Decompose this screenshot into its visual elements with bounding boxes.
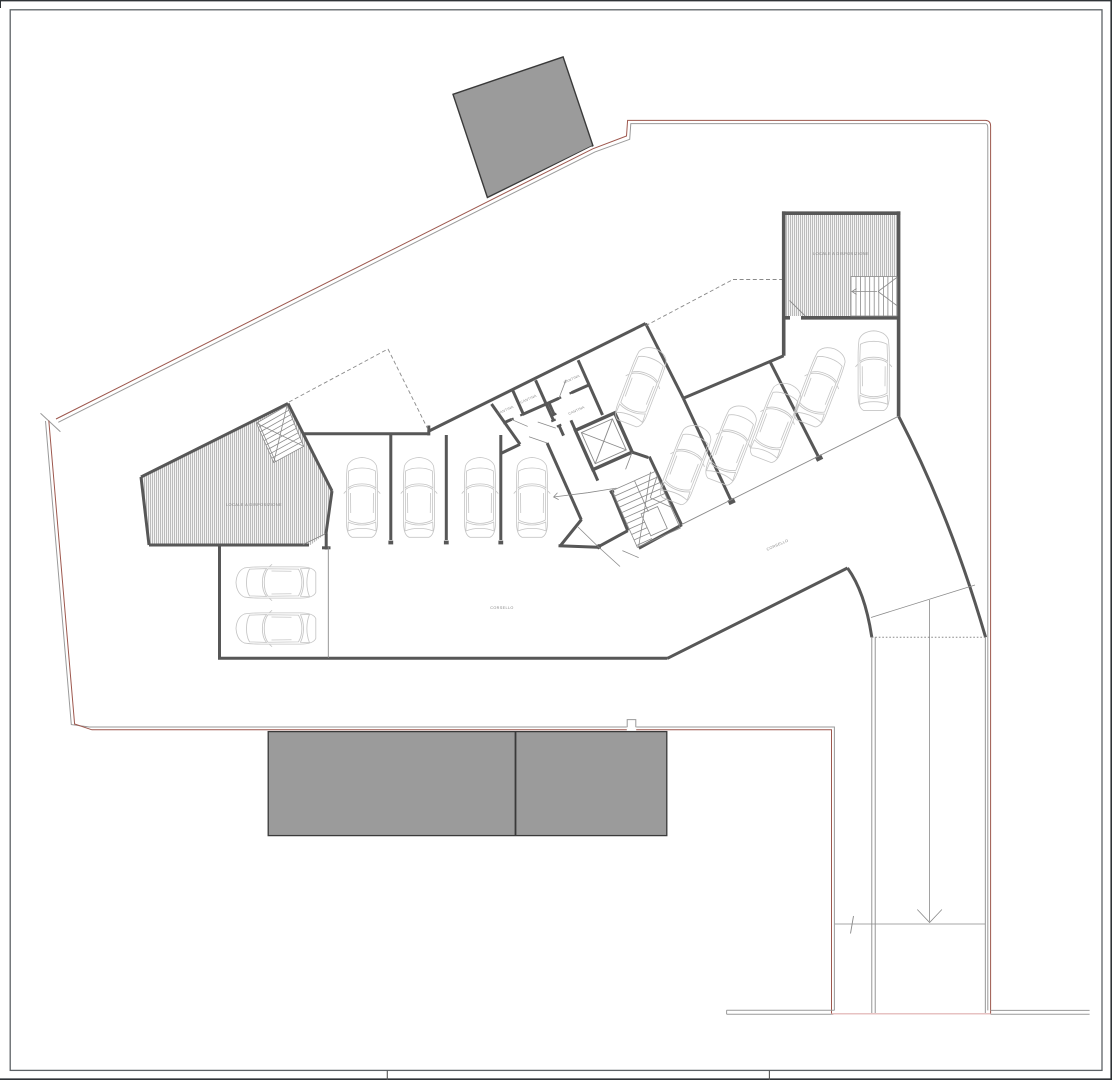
- svg-text:LOCALE A DISPOSIZIONE: LOCALE A DISPOSIZIONE: [813, 251, 869, 256]
- svg-text:LOCALE A DISPOSIZIONE: LOCALE A DISPOSIZIONE: [226, 502, 282, 507]
- svg-text:CORSELLO: CORSELLO: [490, 606, 513, 610]
